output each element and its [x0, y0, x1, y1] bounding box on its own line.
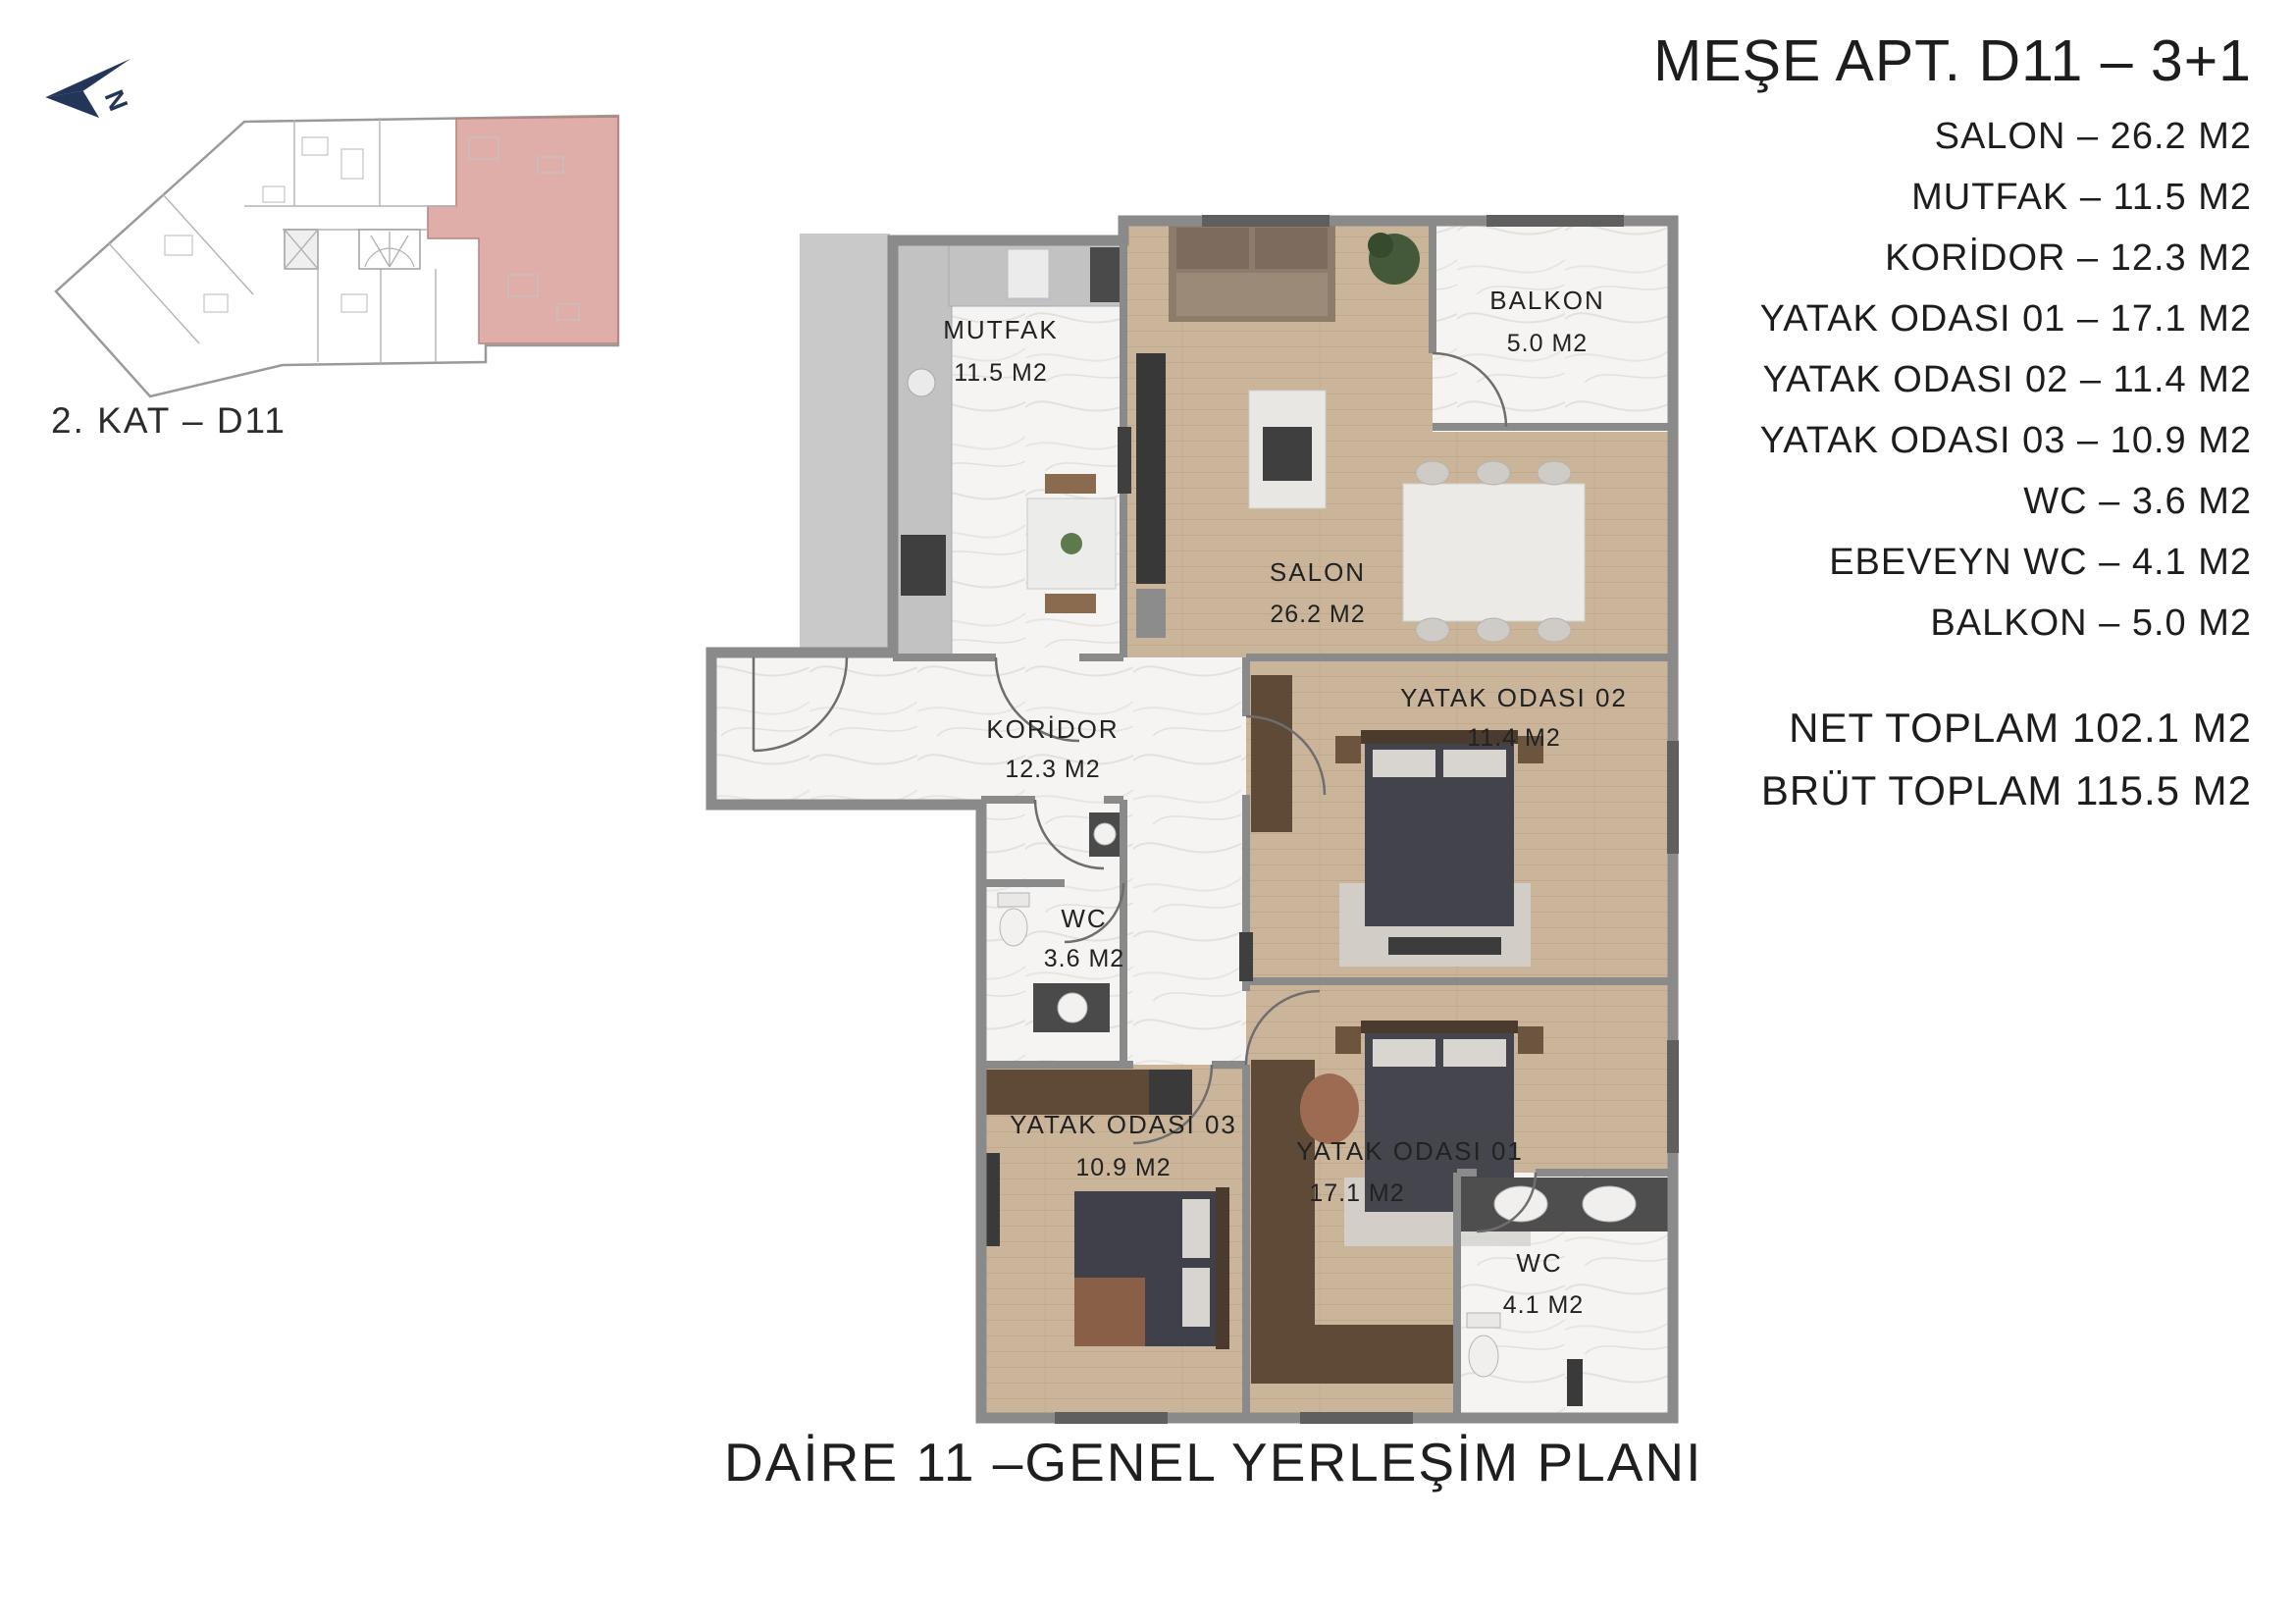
label-yatak-01: YATAK ODASI 01 — [1296, 1136, 1524, 1166]
room-area-line: EBEVEYN WC – 4.1 M2 — [1413, 532, 2252, 593]
info-panel: MEŞE APT. D11 – 3+1 SALON – 26.2 M2 MUTF… — [1413, 27, 2252, 822]
label-ensuite-wc: WC — [1516, 1248, 1562, 1278]
area-koridor: 12.3 M2 — [1005, 756, 1100, 783]
mini-stairs-icon — [359, 230, 420, 269]
label-mutfak: MUTFAK — [943, 315, 1058, 344]
area-ensuite-wc: 4.1 M2 — [1503, 1291, 1584, 1319]
room-area-line: YATAK ODASI 03 – 10.9 M2 — [1413, 410, 2252, 471]
room-area-line: YATAK ODASI 01 – 17.1 M2 — [1413, 288, 2252, 349]
gross-total: BRÜT TOPLAM 115.5 M2 — [1413, 760, 2252, 822]
net-total: NET TOPLAM 102.1 M2 — [1413, 697, 2252, 760]
room-area-line: MUTFAK – 11.5 M2 — [1413, 167, 2252, 228]
area-wc: 3.6 M2 — [1044, 945, 1124, 972]
area-salon: 26.2 M2 — [1270, 601, 1365, 628]
label-yatak-03: YATAK ODASI 03 — [1010, 1110, 1237, 1139]
label-wc: WC — [1061, 904, 1107, 933]
totals-block: NET TOPLAM 102.1 M2 BRÜT TOPLAM 115.5 M2 — [1413, 697, 2252, 822]
area-mutfak: 11.5 M2 — [954, 359, 1047, 387]
floor-label: 2. KAT – D11 — [51, 400, 287, 442]
floor-plan-page: N — [0, 0, 2295, 1624]
room-area-line: BALKON – 5.0 M2 — [1413, 593, 2252, 654]
room-area-line: WC – 3.6 M2 — [1413, 471, 2252, 532]
room-area-line: SALON – 26.2 M2 — [1413, 106, 2252, 167]
apartment-title: MEŞE APT. D11 – 3+1 — [1413, 27, 2252, 94]
label-salon: SALON — [1270, 557, 1366, 587]
area-yatak-03: 10.9 M2 — [1075, 1154, 1171, 1181]
room-area-line: KORİDOR – 12.3 M2 — [1413, 228, 2252, 288]
page-caption: DAİRE 11 –GENEL YERLEŞİM PLANI — [724, 1431, 1702, 1493]
room-area-line: YATAK ODASI 02 – 11.4 M2 — [1413, 349, 2252, 410]
area-yatak-01: 17.1 M2 — [1309, 1179, 1404, 1207]
building-overview-plan — [47, 98, 636, 407]
exterior-gray-mass — [800, 234, 890, 657]
label-koridor: KORİDOR — [986, 714, 1119, 744]
